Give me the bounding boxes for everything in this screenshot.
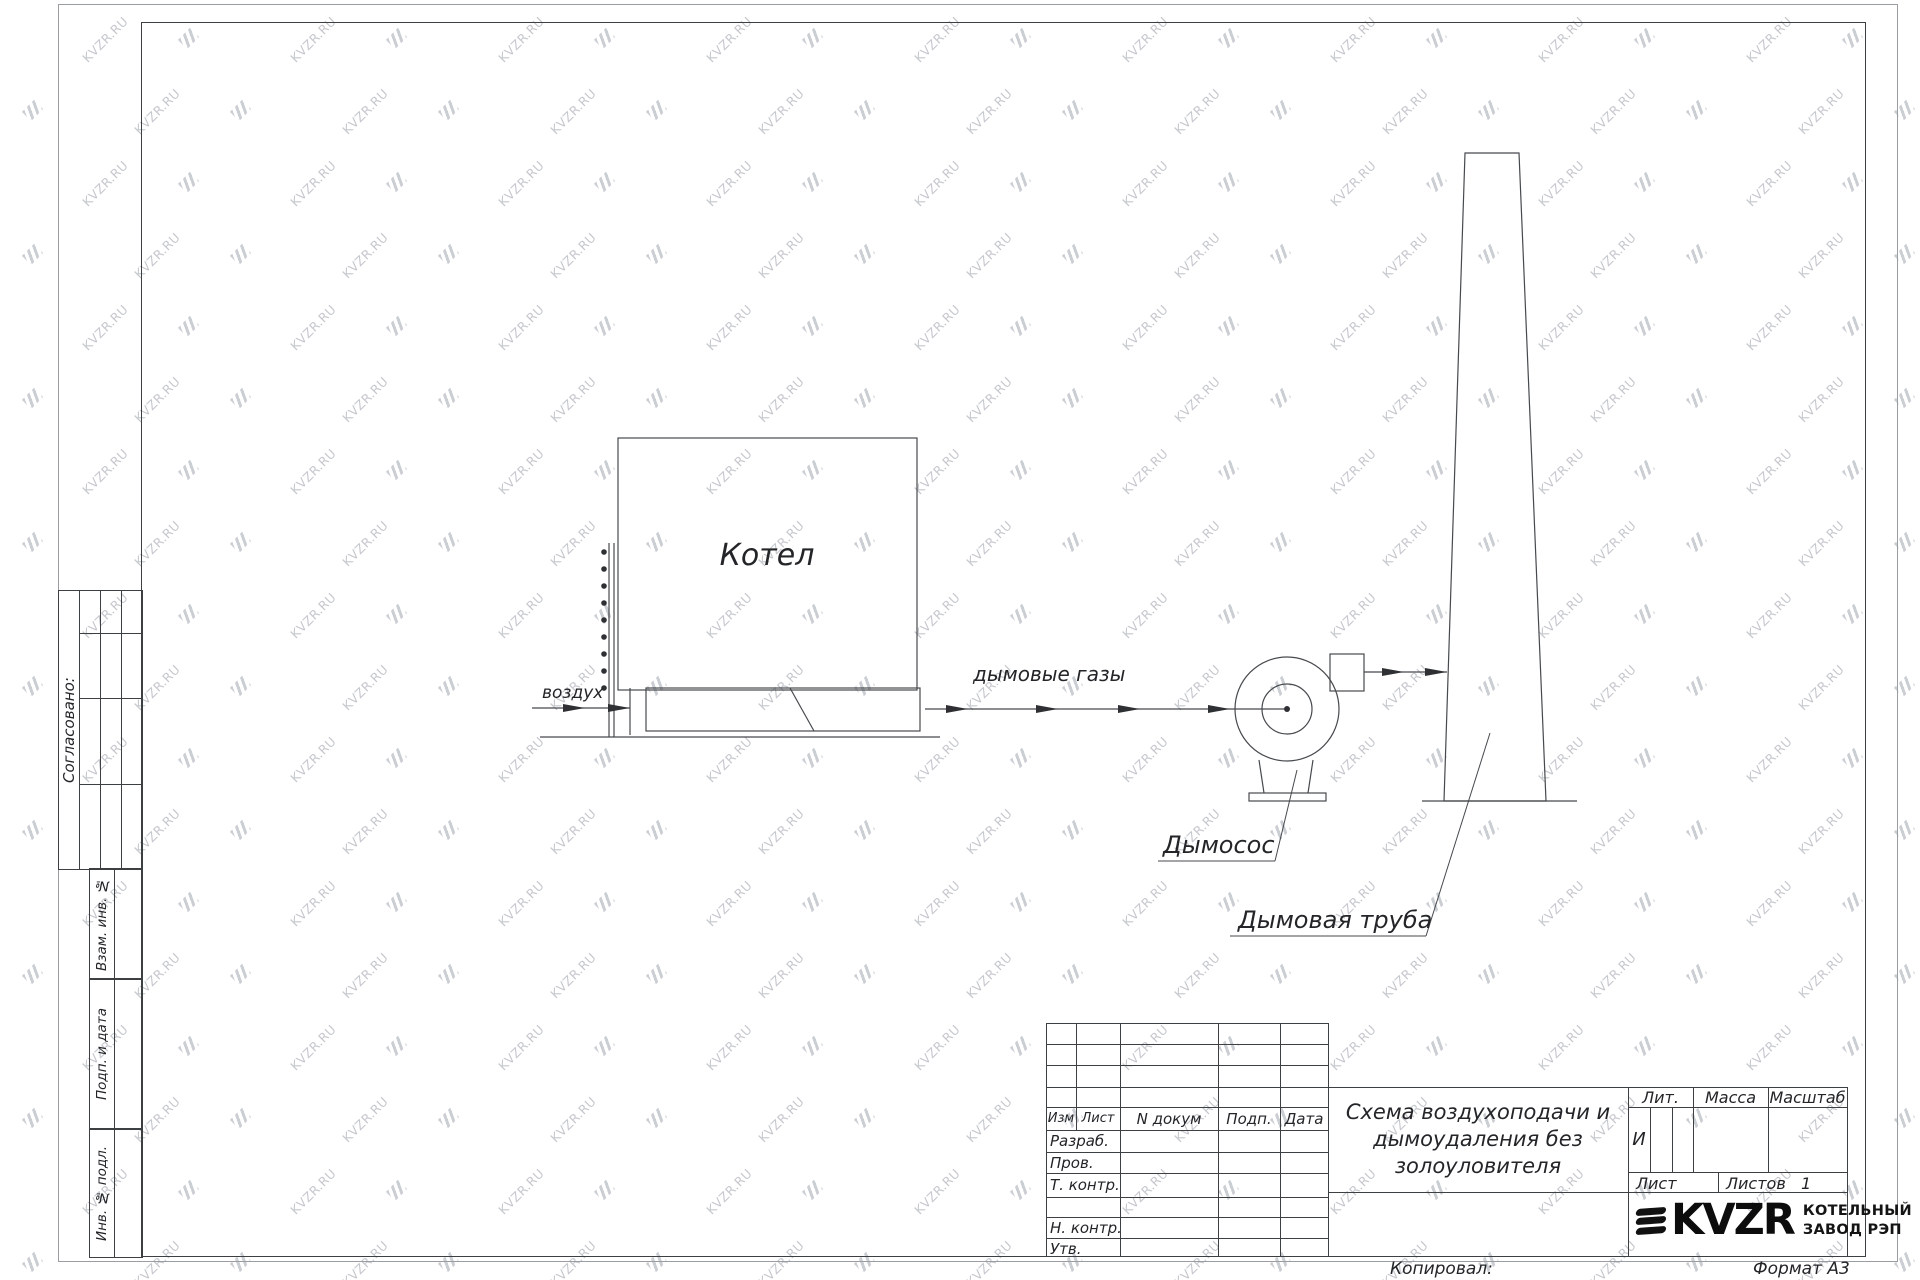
base-diagonal: [790, 688, 814, 731]
document-title: Схема воздухоподачи и дымоудаления без з…: [1328, 1099, 1628, 1180]
col-podp: Подп.: [1218, 1107, 1280, 1130]
listov-value: 1: [1801, 1174, 1811, 1193]
burner-dot: [601, 549, 607, 555]
col-n-dokum: N докум: [1120, 1107, 1218, 1130]
col-data: Дата: [1280, 1107, 1328, 1130]
flue-arrowhead: [1036, 705, 1058, 713]
company-name: КОТЕЛЬНЫЙ ЗАВОД РЭП: [1803, 1202, 1912, 1240]
listov-label: Листов: [1726, 1174, 1786, 1193]
burner-dot: [601, 583, 607, 589]
flue-arrowhead: [946, 705, 968, 713]
chimney-label-leader: [1426, 733, 1490, 936]
kopiroval-label: Копировал:: [1390, 1259, 1493, 1279]
burner-dot: [601, 634, 607, 640]
row-utv: Утв.: [1050, 1240, 1082, 1258]
title-block: Изм Лист N докум Подп. Дата Разраб. Пров…: [1046, 1023, 1847, 1257]
kvzr-logo-mark-icon: [1636, 1206, 1666, 1235]
fan-label: Дымосос: [1163, 831, 1275, 859]
company-logo: KVZR КОТЕЛЬНЫЙ ЗАВОД РЭП: [1636, 1199, 1912, 1242]
kvzr-logo-text: KVZR: [1671, 1199, 1794, 1242]
outlet-arrowhead: [1382, 668, 1404, 676]
masshtab-header: Масштаб: [1768, 1087, 1847, 1107]
row-razrab: Разраб.: [1050, 1132, 1109, 1150]
air-arrowhead: [608, 704, 630, 712]
company-name-line1: КОТЕЛЬНЫЙ: [1803, 1202, 1912, 1221]
company-name-line2: ЗАВОД РЭП: [1803, 1221, 1912, 1240]
fan-label-leader: [1275, 770, 1297, 861]
air-arrowhead: [563, 704, 585, 712]
chimney-outline: [1444, 153, 1546, 801]
fan-hub-dot: [1284, 706, 1290, 712]
chimney-label: Дымовая труба: [1238, 906, 1432, 934]
fan-base-plate: [1249, 793, 1326, 801]
row-t-kontr: Т. контр.: [1050, 1176, 1120, 1194]
lit-header: Лит.: [1628, 1087, 1693, 1107]
burner-dot: [601, 668, 607, 674]
massa-header: Масса: [1693, 1087, 1768, 1107]
burner-dot: [601, 566, 607, 572]
col-izm: Изм: [1046, 1107, 1076, 1130]
burner-dot: [601, 617, 607, 623]
format-label: Формат А3: [1753, 1259, 1850, 1279]
boiler-label: Котел: [720, 538, 815, 573]
document-title-line3: золоуловителя: [1328, 1153, 1628, 1180]
boiler-base: [646, 688, 920, 731]
document-title-line1: Схема воздухоподачи и: [1328, 1099, 1628, 1126]
lit-value: И: [1628, 1107, 1650, 1172]
flue-gases-label: дымовые газы: [973, 662, 1125, 686]
flue-arrowhead: [1118, 705, 1140, 713]
outlet-arrowhead: [1425, 668, 1447, 676]
fan-pedestal-right: [1308, 760, 1313, 793]
fan-pedestal-left: [1259, 760, 1264, 793]
row-prov: Пров.: [1050, 1154, 1094, 1172]
document-title-line2: дымоудаления без: [1328, 1126, 1628, 1153]
col-list: Лист: [1076, 1107, 1120, 1130]
fan-outlet-duct: [1330, 654, 1364, 691]
flue-arrowhead: [1208, 705, 1230, 713]
burner-dot: [601, 600, 607, 606]
list-label: Лист: [1636, 1174, 1677, 1193]
drawing-sheet: { "watermark": { "text": "KVZR.RU" }, "m…: [0, 0, 1920, 1280]
air-label: воздух: [542, 683, 603, 703]
row-n-kontr: Н. контр.: [1050, 1219, 1122, 1237]
burner-dot: [601, 651, 607, 657]
